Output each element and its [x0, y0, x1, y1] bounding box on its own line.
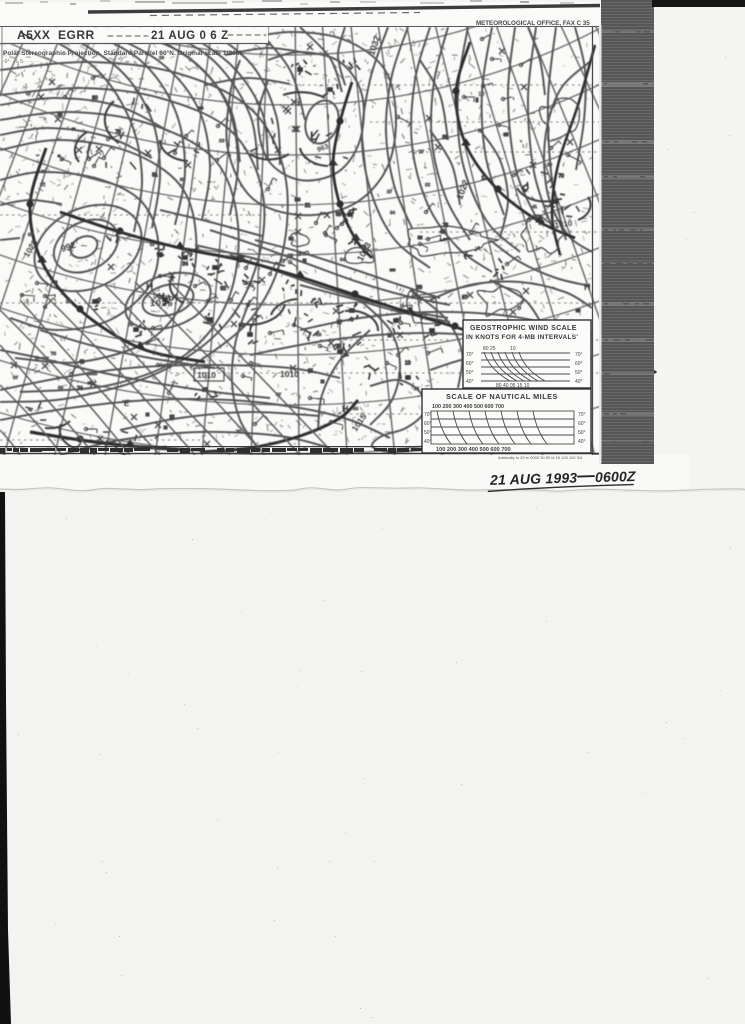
svg-text:07: 07	[41, 169, 47, 174]
svg-text:IN KNOTS FOR 4-MB INTERVALS': IN KNOTS FOR 4-MB INTERVALS'	[466, 334, 578, 341]
svg-text:60°: 60°	[466, 361, 474, 367]
svg-text:59: 59	[443, 135, 449, 141]
svg-text:09: 09	[66, 299, 72, 304]
svg-text:12: 12	[425, 182, 431, 187]
svg-text:75: 75	[51, 351, 57, 356]
svg-text:70°: 70°	[466, 352, 474, 358]
svg-text:27: 27	[419, 149, 425, 154]
svg-text:34: 34	[182, 261, 188, 267]
svg-text:27: 27	[387, 189, 393, 194]
svg-text:Polar Stereographic Projection: Polar Stereographic Projection. Standard…	[3, 49, 243, 57]
svg-text:21 AUG 0 6 Z: 21 AUG 0 6 Z	[151, 30, 229, 42]
svg-text:50°: 50°	[578, 430, 586, 436]
svg-text:40°: 40°	[466, 379, 474, 385]
svg-text:0600Z: 0600Z	[595, 468, 636, 485]
svg-text:60°: 60°	[575, 361, 583, 367]
svg-text:70°: 70°	[424, 412, 432, 418]
svg-text:12: 12	[219, 138, 225, 143]
svg-text:H: H	[146, 282, 153, 293]
svg-text:75: 75	[288, 253, 294, 258]
svg-text:80 25: 80 25	[483, 346, 496, 352]
svg-text:100 200 300 400 500 600 700: 100 200 300 400 500 600 700	[432, 404, 504, 410]
svg-text:50°: 50°	[575, 370, 583, 376]
svg-text:13: 13	[405, 361, 411, 367]
svg-text:1026: 1026	[150, 298, 173, 309]
svg-text:1010: 1010	[197, 370, 216, 380]
svg-text:23: 23	[547, 162, 553, 167]
svg-text:80 40 05 15 10: 80 40 05 15 10	[496, 383, 530, 389]
svg-text:Admiralty to 20 m 0000 30 50 k: Admiralty to 20 m 0000 30 50 kt 15 100 1…	[498, 455, 583, 460]
svg-text:1010: 1010	[280, 369, 299, 379]
svg-text:74: 74	[77, 386, 83, 392]
svg-text:56: 56	[180, 177, 186, 182]
svg-text:50°: 50°	[466, 370, 474, 376]
svg-text:SCALE OF NAUTICAL MILES: SCALE OF NAUTICAL MILES	[446, 392, 558, 401]
svg-text:40°: 40°	[424, 439, 432, 445]
svg-text:L: L	[310, 129, 317, 143]
svg-text:08: 08	[58, 385, 64, 390]
svg-text:07: 07	[26, 91, 32, 96]
svg-text:27: 27	[40, 182, 46, 187]
svg-text:34: 34	[390, 210, 396, 215]
svg-text:10: 10	[478, 92, 485, 98]
svg-text:23: 23	[414, 386, 420, 391]
svg-text:100 200 300 400 500 600: 100 200 300 400 500 600 700	[436, 447, 511, 453]
svg-text:41: 41	[532, 204, 538, 209]
svg-text:21: 21	[305, 203, 311, 209]
svg-text:H: H	[584, 282, 591, 292]
svg-text:39: 39	[417, 285, 423, 291]
svg-text:60°: 60°	[578, 421, 586, 427]
svg-text:'E': 'E'	[122, 399, 131, 408]
svg-text:'E': 'E'	[248, 281, 256, 288]
svg-text:56: 56	[478, 128, 484, 133]
svg-text:GEOSTROPHIC WIND SCALE: GEOSTROPHIC WIND SCALE	[470, 325, 577, 332]
svg-text:-0°· ··/· 5·· ··· · ·: -0°· ··/· 5·· ··· · ·	[3, 59, 39, 65]
svg-text:80: 80	[92, 96, 98, 102]
svg-text:METEOROLOGICAL OFFICE, FAX C: METEOROLOGICAL OFFICE, FAX C 35	[476, 20, 590, 27]
svg-text:75: 75	[128, 322, 134, 327]
svg-text:65: 65	[336, 212, 342, 218]
svg-text:10: 10	[510, 346, 516, 352]
svg-text:70: 70	[558, 174, 564, 180]
svg-text:1016: 1016	[87, 371, 98, 376]
svg-text:07: 07	[150, 242, 156, 247]
svg-text:92: 92	[220, 286, 226, 292]
svg-text:07: 07	[13, 375, 19, 380]
svg-text:60°: 60°	[424, 421, 432, 427]
svg-text:70°: 70°	[578, 412, 586, 418]
svg-text:50°: 50°	[424, 430, 432, 436]
svg-text:12: 12	[482, 175, 488, 181]
svg-text:97: 97	[462, 295, 468, 301]
svg-text:70°: 70°	[575, 352, 583, 358]
svg-text:21 AUG 1993: 21 AUG 1993	[489, 470, 578, 488]
svg-text:A5XX EGRR: A5XX EGRR	[17, 28, 95, 42]
svg-text:34: 34	[256, 100, 262, 105]
svg-text:52: 52	[239, 255, 245, 261]
svg-text:H: H	[342, 404, 349, 414]
svg-text:75: 75	[115, 129, 121, 135]
svg-text:31: 31	[308, 369, 314, 375]
svg-text:34: 34	[353, 406, 359, 411]
svg-text:40°: 40°	[578, 439, 586, 445]
svg-text:40°: 40°	[575, 379, 583, 385]
svg-text:75: 75	[236, 429, 242, 434]
svg-text:07: 07	[28, 232, 34, 237]
